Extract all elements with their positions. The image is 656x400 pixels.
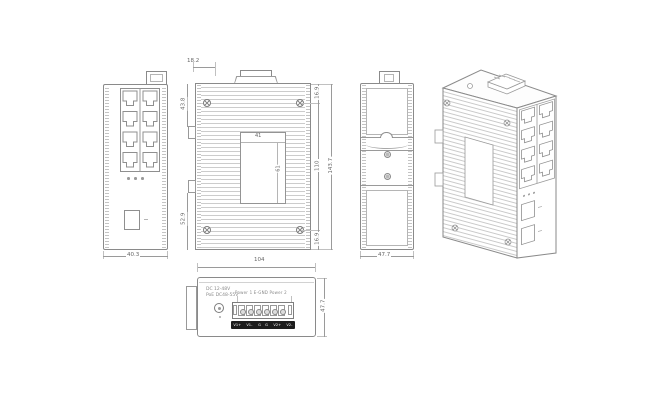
side-upper-panel [366,88,408,135]
terminal-cell [278,305,285,316]
iso-din-tab-upper [435,130,443,143]
iso-ground-screw [468,84,473,89]
side-lower-panel [366,190,408,246]
dimension-drawing-canvas: 40.3 41 61 18.2 43.8 52.9 [0,0,656,400]
rear-right-knurl [306,85,310,248]
power-input-label: Power 1 E-GND Power 2 [235,291,287,295]
iso-din-window [465,137,493,205]
status-led [141,177,144,180]
bottom-width-ext-right [315,263,316,272]
rear-right-ext-top [311,84,333,85]
rear-left-upper-dim: 43.8 [181,97,187,111]
terminal-label: V1- [247,323,253,327]
rear-right-ext-bottom [311,249,333,250]
rear-top-connector-upper [240,70,272,77]
mount-screw-hole [203,226,211,234]
plate-height-dim: 61 [277,164,282,172]
isometric-view [428,52,568,277]
terminal-label: V2+ [273,323,281,327]
side-right-knurl [408,85,412,248]
iso-sfp-port-upper [522,201,535,221]
side-width-dim: 47.7 [377,253,391,259]
din-clip-tab-upper [188,126,196,139]
bottom-din-clip-tab [186,286,197,330]
front-right-knurl-edge [162,86,166,248]
rear-top-ext-b [215,62,216,76]
iso-din-tab-lower [435,173,443,186]
bottom-width-dim: 104 [253,258,266,264]
side-dim-ext-right [413,251,414,259]
status-led [127,177,130,180]
terminal-label-strip: V1+ V1- G G V2+ V2- [231,321,295,329]
rear-right-bottom-dim: 16.9 [315,232,321,246]
side-divider [361,185,413,186]
terminal-end-cap-right [288,305,292,315]
din-clip-tab-lower [188,180,196,193]
terminal-cell [262,305,269,316]
rear-left-knurl [197,85,201,248]
side-screw-hole-lower [384,173,391,180]
bottom-depth-ext-top [317,278,327,279]
terminal-label: V1+ [234,323,242,327]
bottom-inner-top-line [199,282,314,283]
rear-left-upper-dim-line [187,84,188,127]
status-led [134,177,137,180]
front-top-terminal-tab-inner [150,74,163,82]
terminal-cell [254,305,261,316]
bottom-spec-line2: PoE DC48-55V [206,293,238,299]
plate-width-dim: 41 [254,134,262,139]
front-left-knurl-edge [105,86,109,248]
din-clip-knob [380,132,393,138]
side-top-terminal-inner [384,74,394,82]
mount-screw-hole [203,99,211,107]
rear-top-dim-line [193,67,215,68]
terminal-label: V2- [286,323,292,327]
rear-left-lower-dim: 52.9 [181,212,187,226]
rear-left-lower-dim-line [187,193,188,250]
rear-right-top-dim: 16.9 [315,86,321,100]
front-dim-ext-left [103,251,104,259]
front-console-port [124,210,140,230]
terminal-label: G [258,323,261,327]
front-dim-ext-right [167,251,168,259]
rear-right-overall-dim: 143.7 [329,157,335,175]
terminal-cell [246,305,253,316]
side-screw-hole-upper [384,151,391,158]
side-dim-ext-left [360,251,361,259]
terminal-cell [270,305,277,316]
din-plate-top-band [241,142,285,143]
din-clip-spring [366,140,408,149]
terminal-cell [238,305,245,316]
rear-right-middle-dim: 110 [316,160,322,173]
front-width-dim: 40.3 [126,253,140,259]
terminal-label: G [265,323,268,327]
terminal-end-cap-left [233,305,237,315]
front-port-panel [120,88,160,172]
console-port-tick [144,219,148,220]
bottom-depth-dim: 47.7 [321,299,327,313]
reset-button-center [218,307,221,310]
bottom-width-ext-left [197,263,198,272]
bottom-width-dim-line [197,267,316,268]
iso-sfp-port-lower [522,225,535,245]
reset-button-dot [219,316,221,318]
bottom-depth-ext-bottom [317,336,327,337]
